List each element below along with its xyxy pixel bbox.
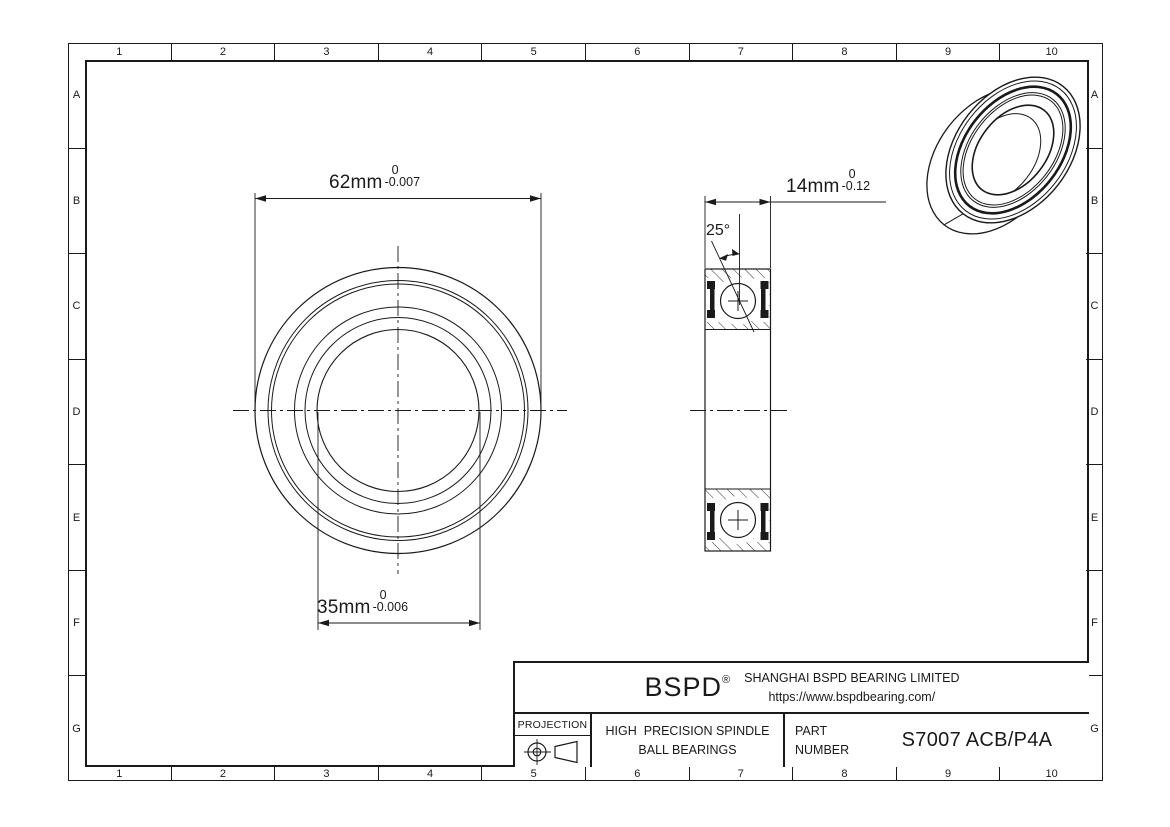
front-view <box>233 193 567 630</box>
dim-tolerance: 0 -0.12 <box>840 169 871 192</box>
dim-width-lines <box>705 196 886 268</box>
dim-outer-diameter-label: 62mm 0 -0.007 <box>329 172 420 195</box>
dim-tolerance: 0 -0.007 <box>383 165 420 188</box>
company-name: SHANGHAI BSPD BEARING LIMITED <box>744 671 959 685</box>
dim-value: 35mm <box>317 597 371 619</box>
part-number-cell: PARTNUMBER S7007 ACB/P4A <box>785 714 1089 767</box>
dim-width-label: 14mm 0 -0.12 <box>786 176 870 199</box>
company-url: https://www.bspdbearing.com/ <box>768 690 935 704</box>
section-view <box>690 196 886 551</box>
projection-label: PROJECTION <box>515 714 590 736</box>
title-block-header: BSPD® SHANGHAI BSPD BEARING LIMITED http… <box>515 663 1089 714</box>
bearing-3d-view <box>899 51 1108 260</box>
company-logo: BSPD® <box>645 672 732 703</box>
company-info: SHANGHAI BSPD BEARING LIMITED https://ww… <box>744 669 959 707</box>
dim-value: 62mm <box>329 172 383 194</box>
title-block: BSPD® SHANGHAI BSPD BEARING LIMITED http… <box>513 661 1089 767</box>
registered-trademark-icon: ® <box>722 674 731 686</box>
projection-cell: PROJECTION <box>515 714 592 767</box>
part-number-value: S7007 ACB/P4A <box>865 729 1089 752</box>
dim-tolerance: 0 -0.006 <box>371 590 408 613</box>
dim-value: 14mm <box>786 176 840 198</box>
product-description: HIGH PRECISION SPINDLEBALL BEARINGS <box>592 714 785 767</box>
drawing-sheet: 12345678910 12345678910 ABCDEFG ABCDEFG <box>0 0 1170 827</box>
dim-bore-diameter-label: 35mm 0 -0.006 <box>317 597 408 620</box>
part-number-label: PARTNUMBER <box>785 722 865 758</box>
contact-angle-label: 25° <box>706 222 730 240</box>
first-angle-projection-icon <box>524 737 582 767</box>
